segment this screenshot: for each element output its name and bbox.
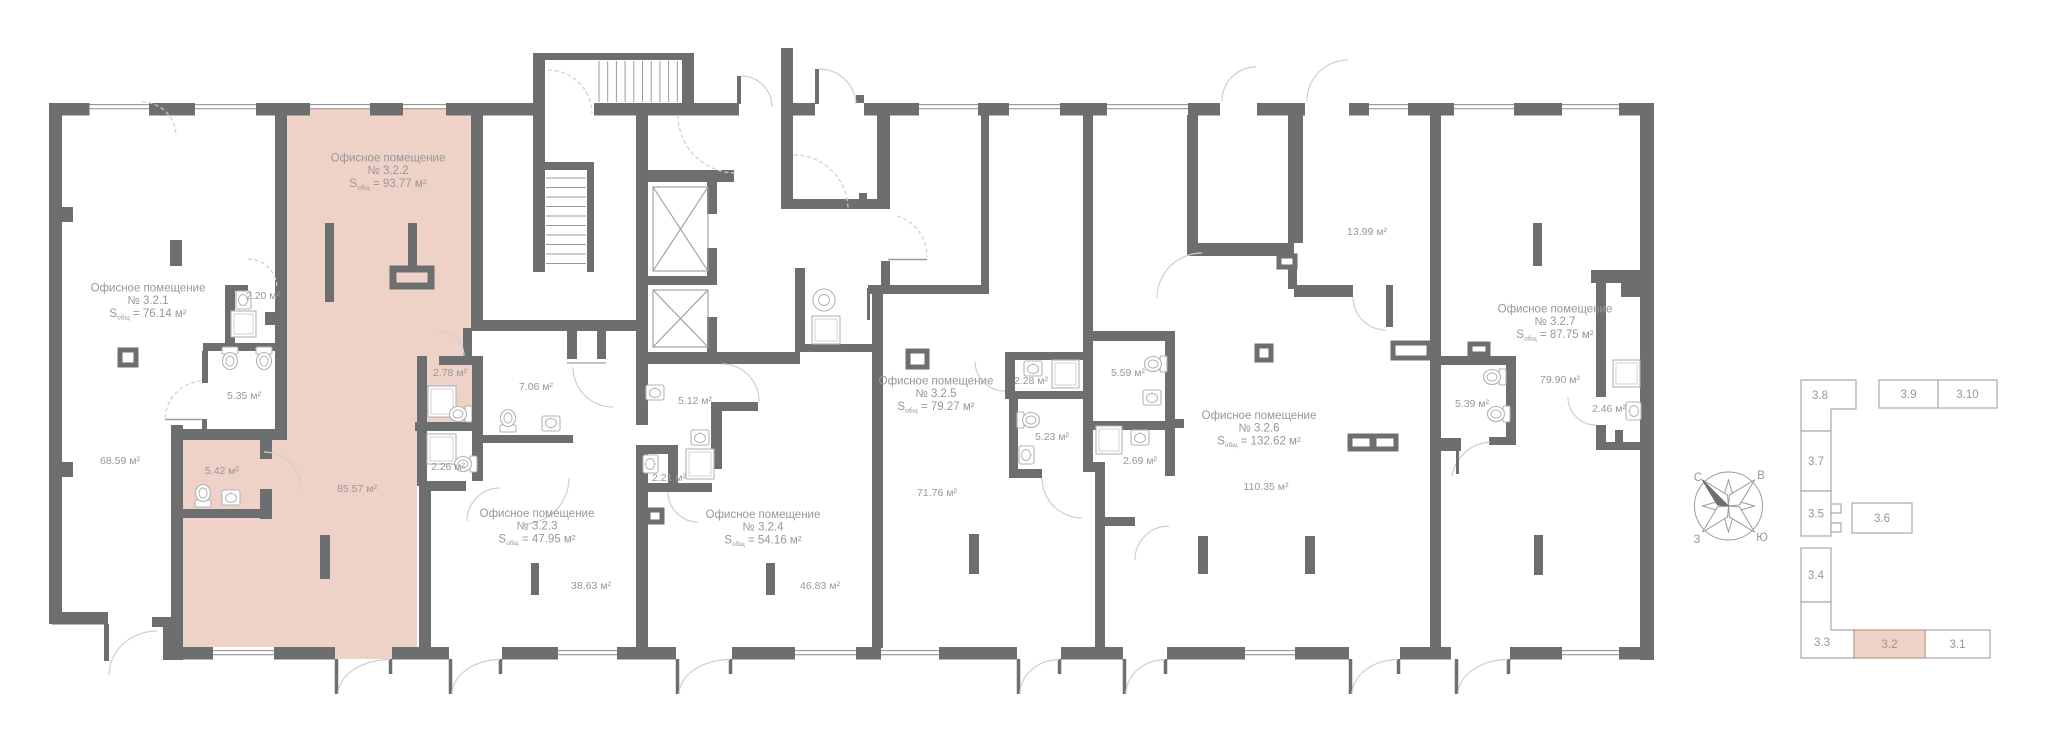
svg-text:С: С bbox=[1694, 472, 1702, 484]
svg-text:5.59 м²: 5.59 м² bbox=[1111, 367, 1146, 379]
svg-text:Офисное помещение: Офисное помещение bbox=[1498, 304, 1613, 316]
svg-text:З: З bbox=[1694, 534, 1701, 546]
svg-text:№ 3.2.7: № 3.2.7 bbox=[1534, 316, 1575, 328]
svg-text:5.42 м²: 5.42 м² bbox=[205, 465, 240, 477]
svg-text:3.4: 3.4 bbox=[1808, 570, 1825, 582]
svg-text:5.35 м²: 5.35 м² bbox=[227, 390, 262, 402]
svg-text:Офисное помещение: Офисное помещение bbox=[331, 153, 446, 165]
svg-text:79.90 м²: 79.90 м² bbox=[1540, 374, 1580, 386]
svg-text:2.69 м²: 2.69 м² bbox=[1123, 455, 1158, 467]
svg-text:2.28 м²: 2.28 м² bbox=[1014, 375, 1049, 387]
svg-text:71.76 м²: 71.76 м² bbox=[917, 487, 957, 499]
svg-text:№ 3.2.4: № 3.2.4 bbox=[742, 522, 784, 534]
svg-text:Офисное помещение: Офисное помещение bbox=[91, 283, 206, 295]
svg-text:Офисное помещение: Офисное помещение bbox=[879, 376, 994, 388]
svg-text:3.1: 3.1 bbox=[1950, 639, 1966, 651]
svg-text:2.21 м²: 2.21 м² bbox=[652, 472, 687, 484]
svg-text:68.59 м²: 68.59 м² bbox=[100, 455, 140, 467]
svg-text:3.7: 3.7 bbox=[1808, 456, 1824, 468]
svg-text:85.57 м²: 85.57 м² bbox=[337, 483, 377, 495]
svg-text:3.3: 3.3 bbox=[1814, 637, 1830, 649]
svg-text:Ю: Ю bbox=[1756, 532, 1768, 544]
svg-text:№ 3.2.6: № 3.2.6 bbox=[1238, 423, 1279, 435]
svg-text:5.23 м²: 5.23 м² bbox=[1035, 431, 1070, 443]
svg-text:3.10: 3.10 bbox=[1956, 389, 1978, 401]
svg-text:В: В bbox=[1757, 470, 1765, 482]
svg-text:38.63 м²: 38.63 м² bbox=[571, 580, 611, 592]
svg-text:2.20 м²: 2.20 м² bbox=[246, 290, 281, 302]
svg-text:13.99 м²: 13.99 м² bbox=[1347, 226, 1387, 238]
svg-text:2.78 м²: 2.78 м² bbox=[433, 367, 468, 379]
svg-text:Офисное помещение: Офисное помещение bbox=[706, 509, 821, 521]
svg-text:3.6: 3.6 bbox=[1874, 513, 1890, 525]
svg-text:110.35 м²: 110.35 м² bbox=[1244, 481, 1289, 493]
svg-text:5.12 м²: 5.12 м² bbox=[678, 395, 713, 407]
svg-text:Офисное помещение: Офисное помещение bbox=[480, 508, 595, 520]
svg-text:№ 3.2.3: № 3.2.3 bbox=[516, 521, 557, 533]
svg-text:№ 3.2.1: № 3.2.1 bbox=[127, 295, 168, 307]
svg-text:3.5: 3.5 bbox=[1808, 509, 1824, 521]
svg-text:3.2: 3.2 bbox=[1882, 639, 1898, 651]
svg-text:5.39 м²: 5.39 м² bbox=[1455, 398, 1490, 410]
svg-text:2.46 м²: 2.46 м² bbox=[1592, 403, 1627, 415]
svg-text:№ 3.2.5: № 3.2.5 bbox=[915, 388, 956, 400]
svg-text:3.8: 3.8 bbox=[1812, 390, 1828, 402]
svg-text:№ 3.2.2: № 3.2.2 bbox=[367, 165, 408, 177]
svg-text:7.06 м²: 7.06 м² bbox=[519, 381, 554, 393]
svg-text:46.83 м²: 46.83 м² bbox=[800, 580, 840, 592]
svg-text:Офисное помещение: Офисное помещение bbox=[1202, 410, 1317, 422]
svg-text:2.26 м²: 2.26 м² bbox=[431, 461, 466, 473]
svg-text:3.9: 3.9 bbox=[1901, 389, 1917, 401]
